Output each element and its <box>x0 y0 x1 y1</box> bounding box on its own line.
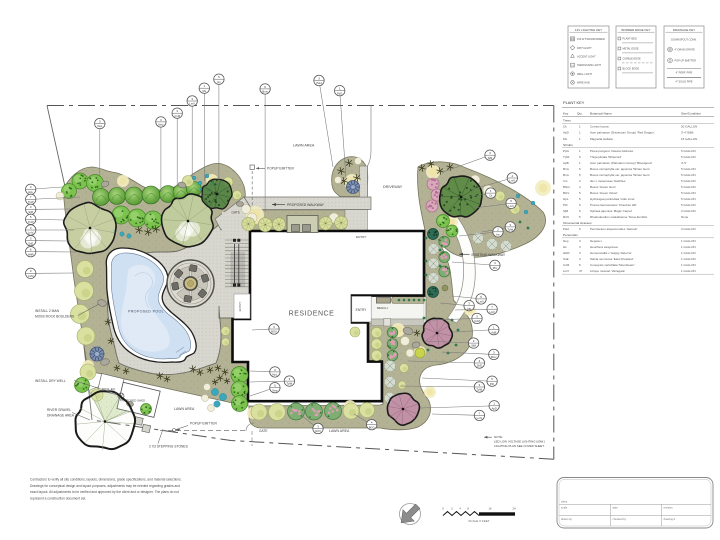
svg-text:PATH LIGHT: PATH LIGHT <box>577 46 592 50</box>
svg-text:Ck: Ck <box>563 125 567 129</box>
svg-text:LAWN AREA: LAWN AREA <box>329 429 350 433</box>
svg-text:drawn by: drawn by <box>561 517 573 521</box>
svg-text:DRAINAGE AREA: DRAINAGE AREA <box>47 414 75 418</box>
svg-text:1 GALLON: 1 GALLON <box>681 245 696 249</box>
svg-text:Nep: Nep <box>158 123 163 127</box>
svg-text:BGV: BGV <box>563 191 569 195</box>
svg-text:Magnolia stellata: Magnolia stellata <box>590 137 613 141</box>
svg-text:ApD: ApD <box>492 406 497 410</box>
svg-text:Bmv: Bmv <box>491 355 497 359</box>
svg-text:HpL: HpL <box>272 373 277 377</box>
svg-text:3'-4' B&B: 3'-4' B&B <box>681 131 693 135</box>
svg-text:TpW: TpW <box>477 388 483 392</box>
svg-text:Buxus microphylla var. japonic: Buxus microphylla var. japonica 'Winter … <box>590 173 650 177</box>
svg-text:SnE: SnE <box>563 257 569 261</box>
svg-text:Buxus microphylla var. japonic: Buxus microphylla var. japonica 'Winter … <box>590 167 650 171</box>
svg-text:Coreopsis verticillata 'Moonbe: Coreopsis verticillata 'Moonbeam' <box>590 263 635 267</box>
svg-text:NOTE:: NOTE: <box>494 435 503 439</box>
svg-text:LmV: LmV <box>563 269 569 273</box>
svg-text:ApB: ApB <box>563 161 569 165</box>
svg-text:DRIVEWAY: DRIVEWAY <box>383 185 403 189</box>
svg-text:LmV: LmV <box>189 102 195 106</box>
svg-text:SnE: SnE <box>477 364 482 368</box>
svg-text:GATE: GATE <box>232 211 240 215</box>
svg-text:5 GALLON: 5 GALLON <box>681 203 696 207</box>
svg-text:LIGHTING PLAN SEE COVER SHEET.: LIGHTING PLAN SEE COVER SHEET. <box>494 444 545 448</box>
svg-text:5 GALLON: 5 GALLON <box>681 197 696 201</box>
svg-text:5 GALLON: 5 GALLON <box>681 149 696 153</box>
svg-text:MOSS ROCK BOULDERS: MOSS ROCK BOULDERS <box>35 315 75 319</box>
svg-text:150 W TRANSFORMER: 150 W TRANSFORMER <box>577 37 605 41</box>
svg-text:Hydrangea paniculata 'Little L: Hydrangea paniculata 'Little Lime' <box>590 197 635 201</box>
svg-text:LmV: LmV <box>489 310 495 314</box>
svg-text:scale: scale <box>561 506 568 510</box>
svg-text:Buxus 'Green Velvet': Buxus 'Green Velvet' <box>590 191 618 195</box>
svg-text:Ilex x meserveae 'Hachfee': Ilex x meserveae 'Hachfee' <box>590 179 626 183</box>
svg-text:PaH: PaH <box>563 227 569 231</box>
svg-text:PLANT KEY: PLANT KEY <box>563 100 585 105</box>
svg-text:Nepeta x: Nepeta x <box>590 239 603 243</box>
svg-text:Acer palmatum (Dissectum Group: Acer palmatum (Dissectum Group) 'Red Dra… <box>590 131 655 135</box>
svg-text:Heuchera sanguinea: Heuchera sanguinea <box>590 245 618 249</box>
svg-text:INSTALL 2 MAN: INSTALL 2 MAN <box>35 309 60 313</box>
svg-text:Rhododendron catawbiense 'Nova: Rhododendron catawbiense 'Nova Zembla' <box>590 215 648 219</box>
svg-text:1 GALLON: 1 GALLON <box>681 251 696 255</box>
svg-text:None: None <box>681 215 689 219</box>
svg-text:Bmv: Bmv <box>563 167 570 171</box>
svg-text:DRAINAGE KEY: DRAINAGE KEY <box>673 28 696 32</box>
svg-text:SCALE X FEET: SCALE X FEET <box>468 519 489 523</box>
svg-text:LmV: LmV <box>28 231 34 235</box>
svg-text:CvM: CvM <box>28 274 34 278</box>
svg-text:PlC: PlC <box>493 266 497 270</box>
svg-text:POPUP EMITTER: POPUP EMITTER <box>267 167 294 171</box>
svg-text:PlC: PlC <box>490 382 494 386</box>
svg-text:4" SOLID PIPE: 4" SOLID PIPE <box>675 80 692 84</box>
svg-text:CvM: CvM <box>174 114 180 118</box>
svg-text:Bmv: Bmv <box>563 173 570 177</box>
svg-text:ACCENT LIGHT: ACCENT LIGHT <box>577 55 596 59</box>
svg-text:CvM: CvM <box>563 263 570 267</box>
svg-text:DOWNSPOUT CONN.: DOWNSPOUT CONN. <box>671 38 697 42</box>
svg-text:HHR: HHR <box>563 251 570 255</box>
svg-text:5 GALLON: 5 GALLON <box>681 167 696 171</box>
svg-text:Shrubs: Shrubs <box>563 143 573 147</box>
svg-text:BGG: BGG <box>369 425 375 429</box>
svg-text:20 GALLON: 20 GALLON <box>681 125 697 129</box>
svg-text:Hemerocallis x 'Happy Returns': Hemerocallis x 'Happy Returns' <box>590 251 632 255</box>
svg-text:4" DRAIN GRATE: 4" DRAIN GRATE <box>675 48 696 52</box>
svg-text:ApD: ApD <box>563 131 570 135</box>
svg-text:LAWN AREA: LAWN AREA <box>174 407 195 411</box>
svg-text:1 GALLON: 1 GALLON <box>681 257 696 261</box>
svg-text:exact layout. All adjustments: exact layout. All adjustments to be veri… <box>30 490 179 494</box>
svg-text:Cornus kousa: Cornus kousa <box>590 125 609 129</box>
svg-text:1 GALLON: 1 GALLON <box>681 269 696 273</box>
svg-text:5 GALLON: 5 GALLON <box>681 185 696 189</box>
svg-text:WELL LIGHT: WELL LIGHT <box>577 72 592 76</box>
svg-text:12V LIGHTING KEY: 12V LIGHTING KEY <box>575 28 602 32</box>
svg-text:ApB: ApB <box>491 330 496 334</box>
svg-text:Contractors to verify all site: Contractors to verify all site condition… <box>30 478 182 482</box>
svg-text:Hs: Hs <box>563 245 567 249</box>
svg-text:TpW: TpW <box>28 200 34 204</box>
svg-text:date: date <box>613 506 619 510</box>
svg-text:PaH: PaH <box>316 81 321 85</box>
svg-text:ENTRY: ENTRY <box>356 235 366 239</box>
svg-text:POPUP EMITTER: POPUP EMITTER <box>190 422 217 426</box>
svg-text:SjM: SjM <box>563 209 569 213</box>
svg-text:LmV: LmV <box>477 416 483 420</box>
svg-text:RcN: RcN <box>315 429 320 433</box>
svg-text:Pennisetum alopecuroides 'Hame: Pennisetum alopecuroides 'Hameln' <box>590 227 638 231</box>
svg-text:Perennials: Perennials <box>563 233 578 237</box>
svg-text:37: 37 <box>579 269 583 273</box>
svg-text:5 GALLON: 5 GALLON <box>681 191 696 195</box>
svg-text:RcN: RcN <box>563 215 569 219</box>
svg-text:BGG: BGG <box>563 185 570 189</box>
svg-text:BORDER EDGE KEY: BORDER EDGE KEY <box>621 28 650 32</box>
svg-text:16: 16 <box>488 507 492 511</box>
svg-text:SjM: SjM <box>28 210 33 214</box>
svg-text:15 GALLON: 15 GALLON <box>681 137 697 141</box>
svg-text:Thuja plicata 'Whipcord': Thuja plicata 'Whipcord' <box>590 155 622 159</box>
svg-text:Bmv: Bmv <box>262 90 268 94</box>
svg-text:1 GALLON: 1 GALLON <box>681 239 696 243</box>
svg-text:Picea pungens 'Glauca Globosa': Picea pungens 'Glauca Globosa' <box>590 149 634 153</box>
svg-text:3 GALLON: 3 GALLON <box>681 209 696 213</box>
svg-text:BLOCK EDGE: BLOCK EDGE <box>623 67 640 71</box>
svg-text:Ms: Ms <box>203 89 207 93</box>
svg-text:ENTRY: ENTRY <box>238 302 242 312</box>
svg-text:PlC: PlC <box>563 203 569 207</box>
svg-text:Acer palmatum (Palmatum Group): Acer palmatum (Palmatum Group) 'Bloodgoo… <box>590 161 652 165</box>
svg-text:INSTALL DRY WELL: INSTALL DRY WELL <box>35 379 66 383</box>
svg-text:WIRE HUB: WIRE HUB <box>577 81 590 85</box>
svg-text:PROPOSED POOL: PROPOSED POOL <box>128 310 164 314</box>
svg-text:checked by: checked by <box>613 517 627 521</box>
svg-text:Irm: Irm <box>563 179 568 183</box>
svg-text:24: 24 <box>512 507 516 511</box>
svg-text:PpG: PpG <box>563 149 570 153</box>
svg-text:3 GALLON: 3 GALLON <box>681 227 696 231</box>
svg-text:represent a construction docum: represent a construction document set. <box>30 496 86 500</box>
svg-text:Ornamental Grasses: Ornamental Grasses <box>563 221 592 225</box>
svg-text:ENTRY: ENTRY <box>356 308 368 312</box>
svg-text:4'-5': 4'-5' <box>681 161 687 165</box>
svg-text:Liriope muscari 'Variegata': Liriope muscari 'Variegata' <box>590 269 625 273</box>
svg-text:Spiraea japonica 'Magic Carpet: Spiraea japonica 'Magic Carpet' <box>590 209 633 213</box>
svg-text:GATE: GATE <box>259 429 267 433</box>
svg-text:HpL: HpL <box>563 197 569 201</box>
svg-text:POP UP EMITTER: POP UP EMITTER <box>675 59 697 63</box>
svg-text:TpW: TpW <box>563 155 570 159</box>
svg-text:TpW: TpW <box>507 228 513 232</box>
svg-text:LAWN AREA: LAWN AREA <box>293 144 315 148</box>
svg-text:client: client <box>561 500 568 504</box>
svg-text:Drawings for conceptual design: Drawings for conceptual design and layou… <box>30 484 180 488</box>
svg-text:RESIDENCE: RESIDENCE <box>289 311 335 318</box>
svg-text:METAL EDGE: METAL EDGE <box>623 47 639 51</box>
svg-text:LmV: LmV <box>510 179 516 183</box>
svg-text:PROPOSED WALKWAY: PROPOSED WALKWAY <box>287 203 325 207</box>
svg-text:revision: revision <box>664 506 674 510</box>
svg-text:Key: Key <box>563 112 569 116</box>
svg-text:Salvia nemorosa 'East Frieslan: Salvia nemorosa 'East Friesland' <box>590 257 634 261</box>
svg-text:SjM: SjM <box>488 156 493 160</box>
svg-text:5 GALLON: 5 GALLON <box>681 173 696 177</box>
svg-text:drawing #: drawing # <box>664 517 676 521</box>
svg-text:HARDSCAPE LIGHT: HARDSCAPE LIGHT <box>577 63 602 67</box>
svg-text:Botanical Name: Botanical Name <box>590 112 612 116</box>
svg-text:TpW: TpW <box>28 220 34 224</box>
svg-text:LED LOW VOLTAGE LIGHTING (60W.: LED LOW VOLTAGE LIGHTING (60W.) <box>494 440 545 444</box>
svg-text:Nep: Nep <box>272 388 277 392</box>
svg-text:LmV: LmV <box>478 300 484 304</box>
svg-text:Buxus 'Green Gem': Buxus 'Green Gem' <box>590 185 616 189</box>
svg-text:CURBLE EDGE: CURBLE EDGE <box>623 57 642 61</box>
svg-text:PLANT BED: PLANT BED <box>623 37 637 41</box>
svg-text:5 GALLON: 5 GALLON <box>681 179 696 183</box>
svg-text:Qty.: Qty. <box>577 112 583 116</box>
svg-text:SnE: SnE <box>28 241 33 245</box>
svg-text:1 GALLON: 1 GALLON <box>681 263 696 267</box>
svg-text:4" PERF. PIPE: 4" PERF. PIPE <box>676 71 693 75</box>
svg-text:EXISTING WALKWAY: EXISTING WALKWAY <box>472 253 506 257</box>
svg-text:Trees: Trees <box>563 119 571 123</box>
svg-text:TpW: TpW <box>287 382 293 386</box>
svg-text:H: H <box>571 64 573 68</box>
svg-text:Nep: Nep <box>97 124 102 128</box>
svg-text:Prunus laurocerasus 'Chestnut: Prunus laurocerasus 'Chestnut Hill' <box>590 203 637 207</box>
svg-text:BENCH: BENCH <box>377 306 388 310</box>
svg-text:5 GALLON: 5 GALLON <box>681 155 696 159</box>
svg-text:RIVER GRAVEL: RIVER GRAVEL <box>47 408 71 412</box>
svg-text:2 X3 STEPPING STONES: 2 X3 STEPPING STONES <box>149 445 189 449</box>
svg-text:HHR: HHR <box>28 252 34 256</box>
svg-text:Nep: Nep <box>563 239 569 243</box>
svg-text:HpL: HpL <box>28 190 33 194</box>
svg-text:PpG: PpG <box>337 91 342 95</box>
svg-text:Ms: Ms <box>563 137 567 141</box>
svg-text:Size/Condition: Size/Condition <box>681 112 701 116</box>
svg-text:CvM: CvM <box>474 319 480 323</box>
svg-text:BGV: BGV <box>271 330 277 334</box>
svg-text:SjM: SjM <box>471 344 476 348</box>
svg-text:LmV: LmV <box>508 204 514 208</box>
